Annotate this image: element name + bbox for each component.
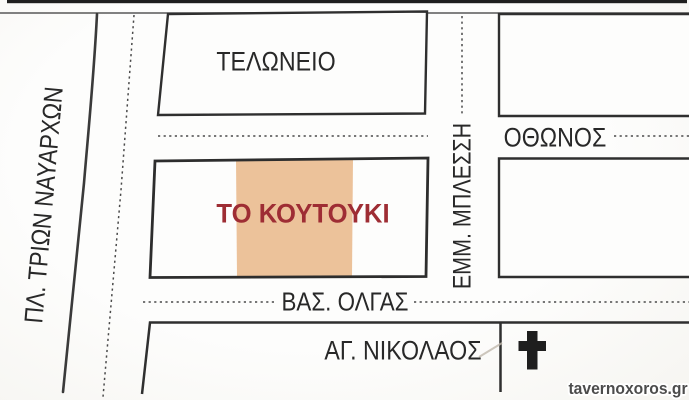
othonos-street-label: ΟΘΩΝΟΣ bbox=[504, 123, 607, 154]
blessi-street-label: ΕΜΜ. ΜΠΛΕΣΣΗ bbox=[449, 123, 478, 289]
annotation-mark bbox=[479, 343, 502, 357]
church-label: ΑΓ. ΝΙΚΟΛΑΟΣ bbox=[324, 336, 481, 367]
customs-label: ΤΕΛΩΝΕΙΟ bbox=[216, 47, 335, 78]
northeast-block-outline bbox=[499, 14, 689, 116]
map-top-border bbox=[7, 0, 687, 3]
venue-label: ΤΟ ΚΟΥΤΟΥΚΙ bbox=[216, 199, 389, 230]
map-canvas: ΠΛ. ΤΡΙΩΝ ΝΑΥΑΡΧΩΝ ΤΕΛΩΝΕΙΟ ΟΘΩΝΟΣ ΕΜΜ. … bbox=[0, 0, 689, 400]
watermark: tavernoxoros.gr bbox=[568, 379, 687, 399]
church-cross-icon bbox=[519, 331, 547, 370]
vas-olgas-street-label: ΒΑΣ. ΟΛΓΑΣ bbox=[282, 287, 409, 318]
plaza-road-edge bbox=[63, 14, 97, 392]
east-block-outline bbox=[499, 159, 689, 278]
plaza-road-centerline-dashed bbox=[103, 15, 134, 397]
